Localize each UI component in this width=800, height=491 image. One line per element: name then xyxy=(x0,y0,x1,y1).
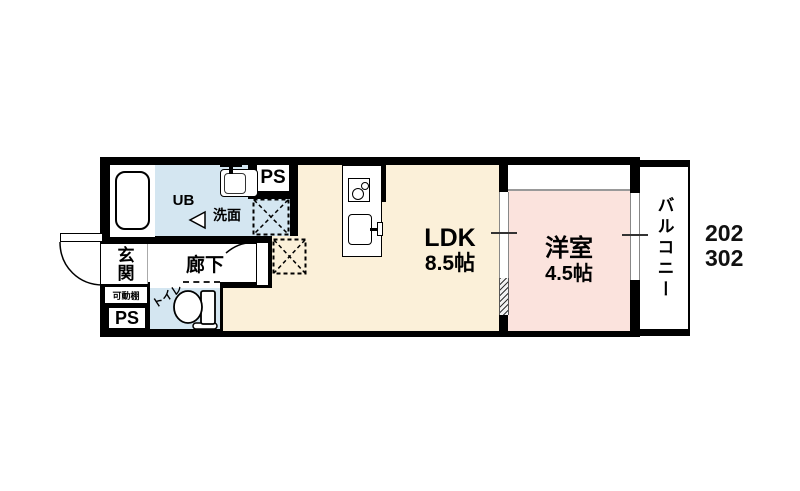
pipe-space-bottom: PS xyxy=(107,306,147,330)
movable-shelf-label: 可動棚 xyxy=(112,289,139,302)
ldk-size: 8.5帖 xyxy=(390,252,510,276)
pipe-space-top-label: PS xyxy=(260,167,285,189)
room-entrance: 玄関 xyxy=(101,244,148,284)
sink-icon xyxy=(348,214,372,245)
movable-shelf: 可動棚 xyxy=(104,286,148,304)
ldk-label: LDK 8.5帖 xyxy=(390,224,510,276)
unit-numbers: 202 302 xyxy=(705,221,743,272)
stove-icon xyxy=(348,178,370,202)
toilet-opening-dash-icon xyxy=(183,281,220,283)
entrance-label: 玄関 xyxy=(112,246,137,282)
washroom-label: 洗面 xyxy=(213,205,241,225)
unit-number-2: 302 xyxy=(705,246,743,271)
western-room-label: 洋室 4.5帖 xyxy=(508,236,630,285)
western-room-top-band xyxy=(508,165,630,191)
pipe-space-top: PS xyxy=(255,163,291,193)
room-balcony: バルコニー xyxy=(640,160,690,336)
bathtub-icon xyxy=(115,171,150,230)
unit-bath-door-icon xyxy=(187,210,207,230)
washing-machine-space-icon xyxy=(252,198,290,236)
unit-bath-label: UB xyxy=(173,192,195,209)
washbasin-icon xyxy=(220,169,258,197)
hall-door-swing-icon xyxy=(222,238,258,256)
refrigerator-space-icon xyxy=(272,238,307,275)
washbasin-faucet-stem-icon xyxy=(229,166,233,174)
pipe-space-bottom-label: PS xyxy=(115,308,139,329)
hallway-label: 廊下 xyxy=(186,250,224,277)
western-room-size: 4.5帖 xyxy=(508,263,630,285)
western-room-name: 洋室 xyxy=(508,236,630,263)
sink-faucet-handle-icon xyxy=(377,222,383,236)
entrance-door-swing-icon xyxy=(58,240,105,287)
ldk-name: LDK xyxy=(390,224,510,252)
unit-number-1: 202 xyxy=(705,221,743,246)
balcony-label: バルコニー xyxy=(652,196,677,301)
room-ldk-floor-lower xyxy=(223,288,298,331)
window-icon xyxy=(630,193,640,280)
floorplan-canvas: バルコニー UB PS 洗面 玄関 廊下 可動棚 PS xyxy=(0,0,800,491)
